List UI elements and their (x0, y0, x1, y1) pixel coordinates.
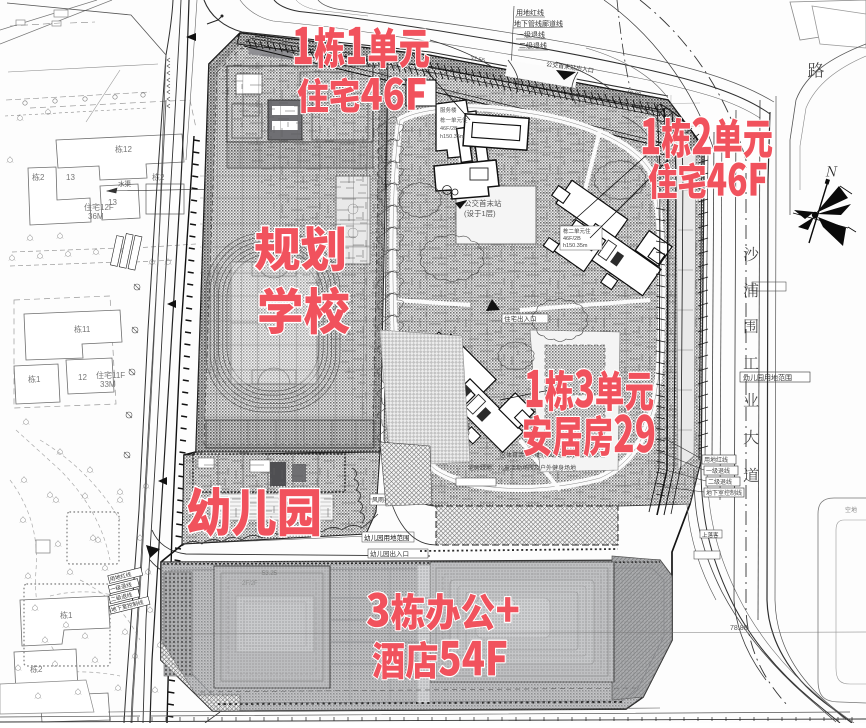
svg-text:12: 12 (78, 373, 87, 382)
svg-text:服务楼: 服务楼 (440, 106, 457, 114)
svg-text:栋11: 栋11 (74, 324, 91, 334)
svg-text:空地: 空地 (845, 506, 857, 514)
svg-text:地下管线廊道线: 地下管线廊道线 (514, 19, 563, 28)
svg-text:栋12: 栋12 (115, 144, 132, 154)
svg-text:幼儿园出入口: 幼儿园出入口 (370, 549, 409, 558)
svg-text:33M: 33M (100, 380, 116, 389)
svg-text:公交首末站: 公交首末站 (464, 198, 502, 208)
svg-text:栋1: 栋1 (28, 374, 41, 384)
svg-text:二级退线: 二级退线 (519, 41, 547, 50)
svg-text:78.88: 78.88 (730, 625, 748, 632)
svg-text:36M: 36M (88, 212, 104, 221)
svg-text:宅旁绿地、儿童活动场所及户外健身场地: 宅旁绿地、儿童活动场所及户外健身场地 (468, 464, 576, 472)
svg-text:用地红线: 用地红线 (516, 8, 544, 17)
svg-text:栋2: 栋2 (32, 172, 45, 182)
svg-text:栋1: 栋1 (60, 610, 73, 620)
svg-text:水渠: 水渠 (118, 179, 132, 188)
svg-text:h150.35m: h150.35m (440, 134, 465, 140)
svg-text:46F/2B: 46F/2B (563, 236, 581, 242)
svg-text:二级退线: 二级退线 (708, 478, 732, 486)
svg-text:46F/2B: 46F/2B (440, 126, 458, 132)
svg-text:栋2: 栋2 (152, 172, 165, 182)
svg-text:一级退线: 一级退线 (706, 467, 730, 475)
svg-text:(设于1层): (设于1层) (464, 208, 496, 218)
svg-text:栋一单元住: 栋一单元住 (440, 116, 468, 124)
svg-text:上落客: 上落客 (702, 531, 719, 539)
svg-text:住宅出入口: 住宅出入口 (504, 314, 537, 323)
svg-text:栋二单元住: 栋二单元住 (563, 227, 591, 235)
svg-text:住宅12F: 住宅12F (84, 202, 114, 212)
svg-text:地下室控制线: 地下室控制线 (706, 489, 742, 497)
svg-text:13: 13 (66, 173, 75, 182)
svg-text:住宅11F: 住宅11F (96, 370, 125, 380)
svg-text:一级退线: 一级退线 (517, 30, 545, 39)
svg-text:用地红线: 用地红线 (704, 456, 728, 464)
svg-text:h150.35m: h150.35m (563, 243, 588, 249)
svg-text:幼儿园用地范围: 幼儿园用地范围 (364, 533, 410, 542)
